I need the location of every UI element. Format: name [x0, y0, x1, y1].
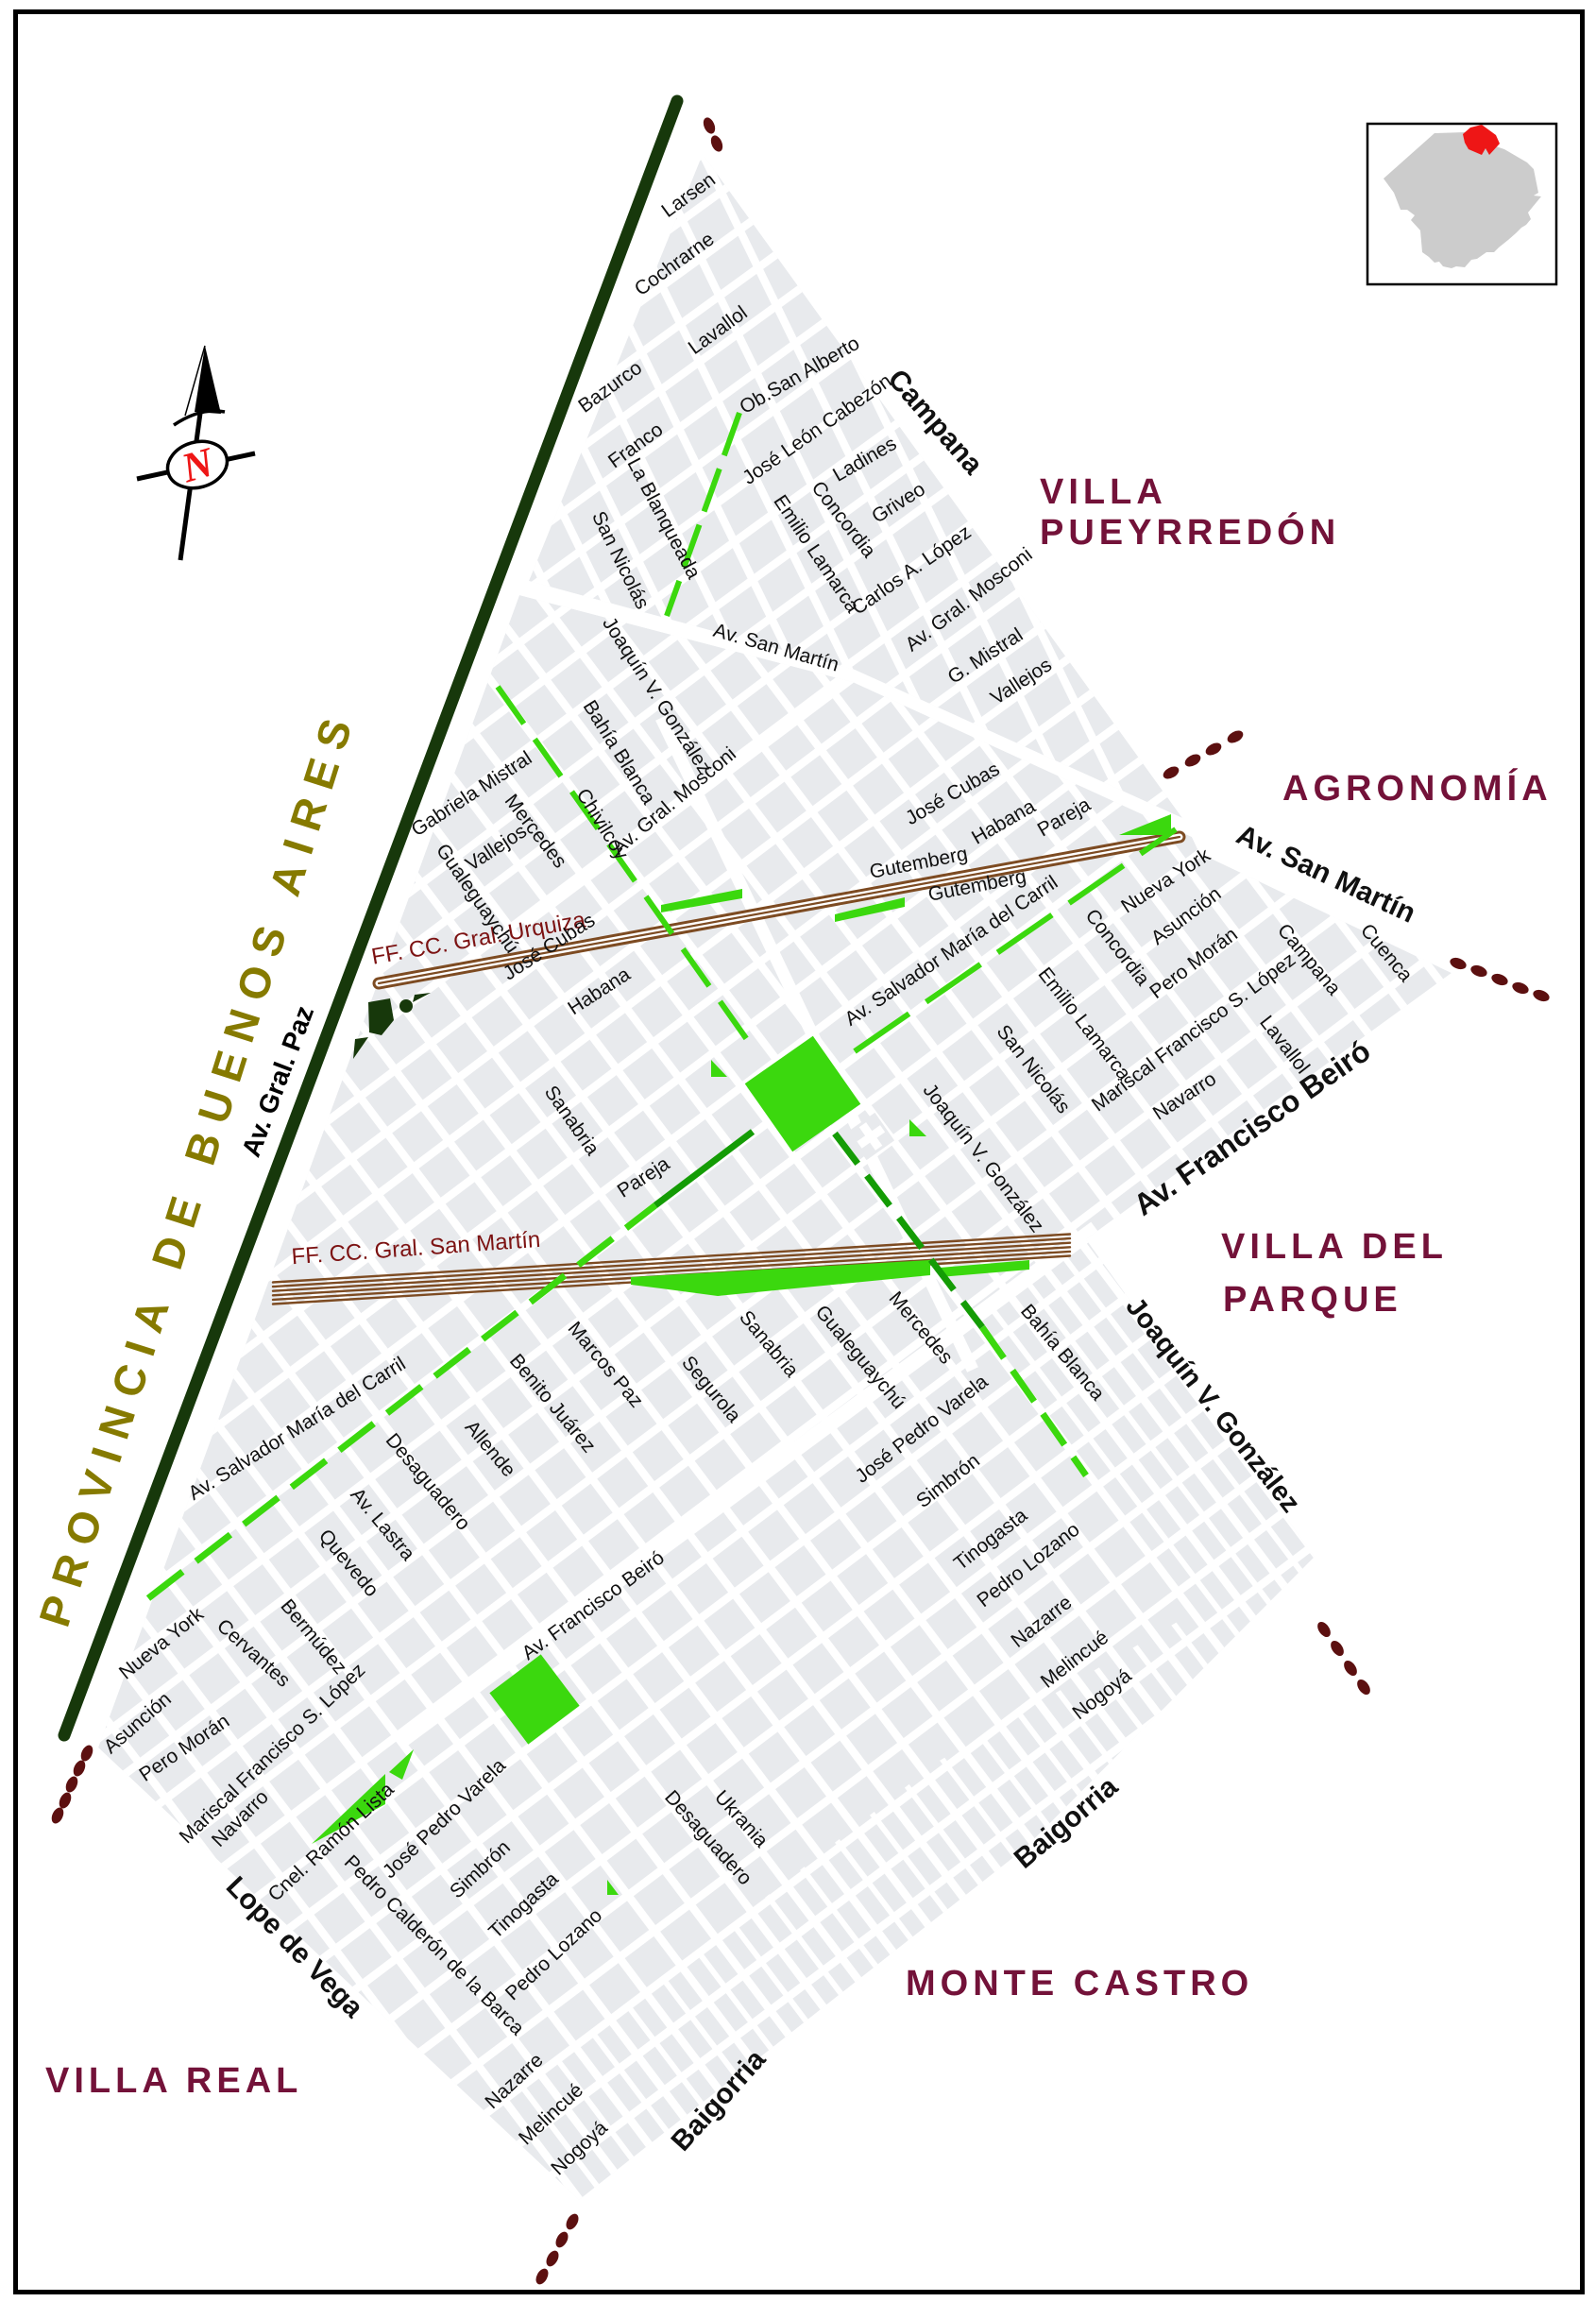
svg-text:PUEYRREDÓN: PUEYRREDÓN — [1040, 511, 1340, 553]
svg-text:VILLA DEL: VILLA DEL — [1221, 1227, 1448, 1267]
svg-text:MONTE CASTRO: MONTE CASTRO — [906, 1964, 1253, 2004]
svg-text:VILLA REAL: VILLA REAL — [45, 2061, 302, 2101]
svg-text:PARQUE: PARQUE — [1223, 1280, 1402, 1320]
svg-text:AGRONOMÍA: AGRONOMÍA — [1282, 767, 1553, 809]
svg-text:VILLA: VILLA — [1040, 472, 1167, 512]
